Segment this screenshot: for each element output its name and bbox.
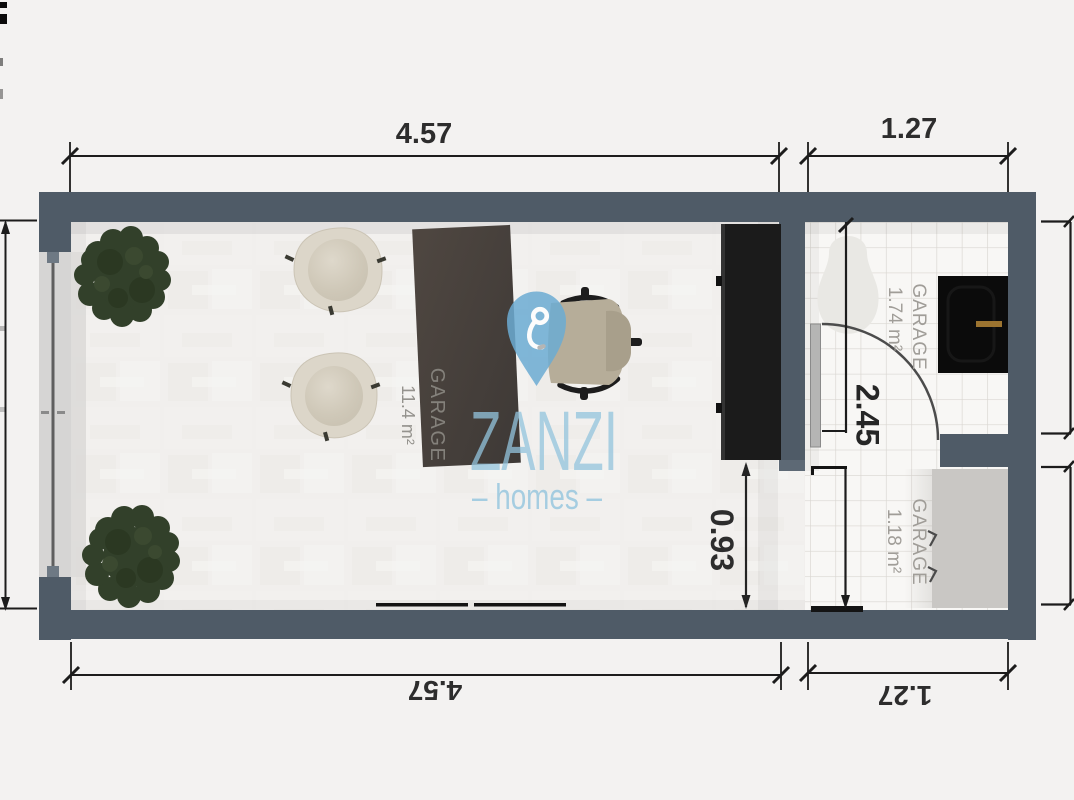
svg-text:11.4 m²: 11.4 m²	[398, 385, 418, 445]
svg-text:GARAGE: GARAGE	[908, 283, 929, 370]
svg-text:4.57: 4.57	[408, 675, 463, 706]
svg-text:1.18 m²: 1.18 m²	[883, 509, 904, 573]
svg-text:1.74 m²: 1.74 m²	[884, 287, 905, 351]
svg-text:4.57: 4.57	[396, 118, 452, 150]
svg-text:GARAGE: GARAGE	[426, 368, 448, 463]
svg-text:1.27: 1.27	[881, 113, 937, 145]
svg-text:0.93: 0.93	[704, 509, 740, 571]
svg-text:– homes –: – homes –	[472, 476, 602, 517]
svg-text:GARAGE: GARAGE	[908, 498, 929, 585]
svg-text:ZANZI: ZANZI	[470, 394, 618, 488]
svg-text:2.45: 2.45	[850, 384, 886, 446]
svg-text:1.27: 1.27	[878, 680, 933, 711]
